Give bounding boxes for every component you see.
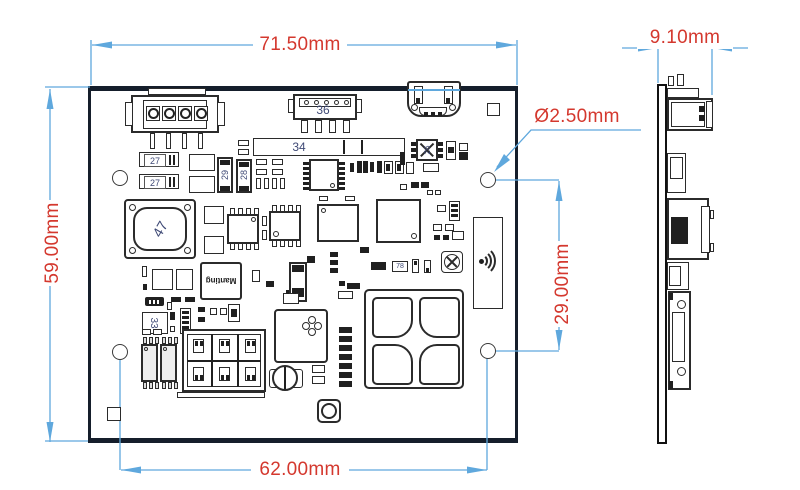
ic-pin xyxy=(272,240,277,247)
ic-pin xyxy=(339,187,345,190)
passive-component xyxy=(198,307,205,312)
clover-petal xyxy=(314,322,322,330)
ic-pin xyxy=(339,177,345,180)
ic-pin xyxy=(230,208,235,215)
micro-usb-foot xyxy=(438,112,442,116)
ic-pin xyxy=(303,182,309,185)
connector-leg xyxy=(150,133,155,149)
header-bar xyxy=(451,204,458,207)
passive-component xyxy=(204,236,224,254)
header-pad xyxy=(339,336,352,342)
touch-pad-quadrant xyxy=(372,344,413,385)
contact-nub xyxy=(247,375,250,380)
connector-leg xyxy=(182,133,187,149)
ic-pin xyxy=(254,243,259,250)
passive-component xyxy=(171,297,181,302)
connector-leg xyxy=(166,133,171,149)
passive-component xyxy=(411,182,419,188)
contact-nub xyxy=(226,341,229,346)
push-button-cap xyxy=(321,403,337,419)
module-strip xyxy=(253,138,405,156)
side-component-inner xyxy=(670,157,683,179)
side-inductor-core xyxy=(671,217,688,244)
ic-pin xyxy=(438,142,443,146)
passive-component xyxy=(448,147,454,153)
silkscreen-label-36: 36 xyxy=(312,101,334,118)
side-contact xyxy=(669,381,673,389)
silkscreen-label-34: 34 xyxy=(283,140,315,154)
passive-component xyxy=(435,190,441,195)
passive-component xyxy=(312,376,325,384)
cell-divider xyxy=(187,360,261,362)
connector-slot xyxy=(157,300,159,304)
ic-pin xyxy=(339,182,345,185)
side-usb-contact xyxy=(699,115,705,121)
passive-component xyxy=(256,178,261,189)
passive-component xyxy=(256,169,267,175)
terminal-block-footer xyxy=(177,392,265,398)
ic-pin xyxy=(303,187,309,190)
cap-stripe xyxy=(169,177,171,187)
passive-component xyxy=(347,283,360,289)
silkscreen-label-27: 27 xyxy=(144,154,166,167)
passive-component xyxy=(152,269,173,290)
ic-pin1-dot xyxy=(251,217,256,222)
ic-pin xyxy=(238,243,243,250)
stripe xyxy=(182,321,189,324)
contact-nub xyxy=(252,341,255,346)
sot-body xyxy=(231,309,237,317)
header-pad xyxy=(339,372,352,378)
ic-pin xyxy=(246,208,251,215)
ic-pin xyxy=(411,148,416,152)
passive-component xyxy=(266,281,274,287)
inductor-corner xyxy=(129,247,136,254)
passive-component xyxy=(262,230,267,240)
jst-connector-ear-left xyxy=(288,99,294,113)
passive-component xyxy=(319,196,328,201)
silkscreen-label-28: 28 xyxy=(236,162,252,188)
pcb-side-view xyxy=(657,84,667,444)
jst-pin-dot xyxy=(344,100,349,105)
opto-pin xyxy=(168,337,172,344)
passive-component xyxy=(262,216,267,226)
ic-pin xyxy=(303,167,309,170)
side-usb-contact xyxy=(699,106,705,112)
board-edge-line xyxy=(408,89,460,91)
passive-component xyxy=(307,256,315,263)
micro-usb-foot xyxy=(431,112,435,116)
dimension-side-depth: 9.10mm xyxy=(637,27,733,49)
passive-component xyxy=(406,162,414,174)
connector-pin xyxy=(162,106,176,121)
header-bar xyxy=(451,209,458,212)
contact-nub xyxy=(226,375,229,380)
passive-component xyxy=(370,162,374,172)
contact-nub xyxy=(247,341,250,346)
passive-component xyxy=(363,161,368,173)
passive-component xyxy=(189,154,215,171)
mounting-hole-bottom-left xyxy=(112,344,128,360)
contact-nub xyxy=(221,341,224,346)
connector-pin xyxy=(146,106,160,121)
passive-component xyxy=(377,161,382,173)
ic-pin xyxy=(238,208,243,215)
passive-component xyxy=(210,308,217,315)
passive-component xyxy=(345,196,355,201)
side-top-pin xyxy=(668,76,674,86)
ic-pin xyxy=(303,172,309,175)
opto-pin xyxy=(162,337,166,344)
micro-usb-contact xyxy=(446,98,450,103)
passive-component xyxy=(198,317,205,322)
header-pad xyxy=(339,363,352,369)
silkscreen-label-78: 78 xyxy=(392,261,408,272)
jst-pin-dot xyxy=(334,100,339,105)
passive-component xyxy=(360,247,369,253)
header-pad xyxy=(339,345,352,351)
jst-leg xyxy=(301,120,308,133)
silkscreen-label-manting: Manting xyxy=(204,274,238,288)
passive-component xyxy=(170,312,175,320)
crystal-line xyxy=(284,367,286,389)
header-bar xyxy=(451,214,458,217)
opto-pin xyxy=(155,337,159,344)
header-pad xyxy=(339,381,352,387)
ic-pin1-dot xyxy=(273,231,279,237)
side-screw xyxy=(677,300,686,309)
side-terminal-inner xyxy=(672,312,685,362)
ic-pin xyxy=(280,205,285,212)
ic-pin xyxy=(246,243,251,250)
ic-pin xyxy=(438,154,443,158)
strip-divider xyxy=(361,140,363,154)
passive-component xyxy=(167,302,172,310)
sot-transistor xyxy=(283,293,299,304)
side-contact xyxy=(669,293,673,300)
jst-connector-ear-right xyxy=(356,99,362,113)
header-pad xyxy=(339,354,352,360)
ic-pin xyxy=(339,172,345,175)
passive-component xyxy=(252,270,260,282)
passive-component xyxy=(338,291,353,299)
ic-pin xyxy=(254,208,259,215)
passive-component xyxy=(280,178,285,189)
opto-pin xyxy=(149,382,153,389)
passive-component xyxy=(170,326,175,332)
passive-component xyxy=(386,164,390,171)
ic-pin xyxy=(272,205,277,212)
sot-leg xyxy=(293,290,296,294)
passive-component xyxy=(421,182,429,188)
ic-pin xyxy=(288,205,293,212)
fiducial-square-top-right xyxy=(487,103,500,116)
dimension-hole-diameter: Ø2.50mm xyxy=(529,106,625,128)
contact-nub xyxy=(195,375,198,380)
opto-pin xyxy=(149,337,153,344)
mounting-hole-top-right xyxy=(480,172,496,188)
ic-pin xyxy=(339,167,345,170)
inductor-corner xyxy=(184,247,191,254)
inductor-corner xyxy=(129,204,136,211)
ic-pin xyxy=(230,243,235,250)
sensor-module xyxy=(274,309,328,363)
touch-pad-quadrant xyxy=(372,297,413,338)
connector-pin xyxy=(194,106,208,121)
cap-stripe xyxy=(173,155,175,165)
passive-component xyxy=(238,149,249,155)
ic-pin xyxy=(296,240,301,247)
passive-component xyxy=(350,163,354,172)
ic-pin1-dot xyxy=(330,183,335,188)
side-plate xyxy=(667,88,699,98)
passive-component xyxy=(330,260,338,265)
jst-pin-dot xyxy=(304,100,309,105)
passive-component xyxy=(143,284,147,290)
passive-component xyxy=(445,224,454,231)
dimension-hole-spacing-horizontal: 62.00mm xyxy=(251,459,349,481)
ic-pin xyxy=(438,148,443,152)
passive-component xyxy=(357,161,362,173)
passive-component xyxy=(371,262,386,270)
passive-component xyxy=(272,159,283,165)
sot-leg xyxy=(286,290,289,294)
opto-pin xyxy=(143,382,147,389)
touch-pad-quadrant xyxy=(419,297,460,338)
dimension-hole-spacing-vertical: 29.00mm xyxy=(552,241,574,327)
contact-nub xyxy=(221,375,224,380)
passive-component xyxy=(142,266,147,277)
passive-component xyxy=(264,178,269,189)
fiducial-square-bottom-left xyxy=(107,407,121,421)
ic-pin xyxy=(303,162,309,165)
opto-dot xyxy=(144,347,148,351)
passive-component xyxy=(312,365,325,373)
mounting-hole-bottom-right xyxy=(480,343,496,359)
passive-component xyxy=(437,205,446,212)
opto-pin xyxy=(174,337,178,344)
side-tab xyxy=(710,243,714,252)
passive-component xyxy=(423,163,439,172)
pcb-mechanical-drawing: 71.50mm 59.00mm 62.00mm 29.00mm Ø2.50mm … xyxy=(0,0,800,490)
side-usb-bracket xyxy=(706,101,713,128)
ic-pin1-dot xyxy=(321,208,326,213)
silkscreen-label-33: 33 xyxy=(146,313,162,333)
passive-component xyxy=(400,152,405,165)
contact-nub xyxy=(252,375,255,380)
passive-component xyxy=(397,164,401,171)
inductor-corner xyxy=(184,204,191,211)
passive-component xyxy=(426,268,429,272)
ic-pin xyxy=(411,154,416,158)
power-connector-ear-right xyxy=(217,102,225,126)
side-top-pin xyxy=(677,74,684,86)
connector-leg xyxy=(198,133,203,149)
opto-pin xyxy=(168,382,172,389)
power-connector-tab xyxy=(148,88,206,95)
connector-slot xyxy=(153,300,155,304)
header-pad xyxy=(339,327,352,333)
strip-divider xyxy=(343,140,345,154)
opto-pin xyxy=(143,337,147,344)
stripe xyxy=(182,316,189,319)
jst-leg xyxy=(343,120,350,133)
opto-pin xyxy=(155,382,159,389)
passive-component xyxy=(238,140,249,146)
passive-component xyxy=(272,178,277,189)
ic-pin xyxy=(296,205,301,212)
contact-nub xyxy=(200,375,203,380)
passive-component xyxy=(189,176,215,193)
jst-leg xyxy=(315,120,322,133)
ic-pin xyxy=(280,240,285,247)
side-component-inner xyxy=(669,266,681,286)
passive-component xyxy=(443,235,449,240)
cap-stripe xyxy=(173,177,175,187)
passive-component xyxy=(220,308,227,315)
passive-component xyxy=(459,143,468,151)
ic-pin xyxy=(303,177,309,180)
ic-pin xyxy=(411,142,416,146)
side-screw xyxy=(677,367,686,376)
stripe xyxy=(182,311,189,314)
passive-component xyxy=(459,152,468,160)
ic-pin xyxy=(339,162,345,165)
opto-dot xyxy=(163,347,167,351)
cap-band xyxy=(292,265,304,272)
passive-component xyxy=(434,235,440,240)
passive-component xyxy=(339,281,345,286)
connector-pin xyxy=(178,106,192,121)
passive-component xyxy=(433,224,442,231)
ic-pin xyxy=(288,240,293,247)
silkscreen-label-27: 27 xyxy=(144,176,166,189)
passive-component xyxy=(176,269,193,290)
micro-usb-screw xyxy=(411,104,418,111)
connector-slot xyxy=(149,300,151,304)
side-inductor-bracket xyxy=(701,206,710,253)
contact-nub xyxy=(195,341,198,346)
passive-component xyxy=(272,169,283,175)
micro-usb-foot xyxy=(424,112,428,116)
opto-pin xyxy=(174,382,178,389)
micro-usb-screw xyxy=(449,104,456,111)
side-tab xyxy=(710,210,714,219)
contact-nub xyxy=(200,341,203,346)
passive-component xyxy=(185,297,195,302)
power-connector-ear-left xyxy=(125,102,133,126)
dimension-board-width: 71.50mm xyxy=(253,34,347,56)
silkscreen-label-29: 29 xyxy=(217,162,233,188)
dimension-board-height: 59.00mm xyxy=(42,200,64,286)
cap-stripe xyxy=(169,155,171,165)
passive-component xyxy=(204,206,224,224)
clover-petal xyxy=(302,322,310,330)
passive-component xyxy=(256,159,267,165)
passive-component xyxy=(452,231,464,240)
wifi-icon-arc xyxy=(466,246,496,276)
jst-leg xyxy=(329,120,336,133)
touch-pad-quadrant xyxy=(419,344,460,385)
passive-component xyxy=(414,261,417,265)
passive-component xyxy=(400,184,407,190)
mounting-hole-top-left xyxy=(112,170,128,186)
silkscreen-label-26: 26 xyxy=(420,140,434,160)
ic-pin1-dot xyxy=(411,233,417,239)
passive-component xyxy=(427,190,433,195)
passive-component xyxy=(330,252,338,257)
micro-usb-contact xyxy=(416,98,420,103)
opto-pin xyxy=(162,382,166,389)
passive-component xyxy=(330,268,338,273)
